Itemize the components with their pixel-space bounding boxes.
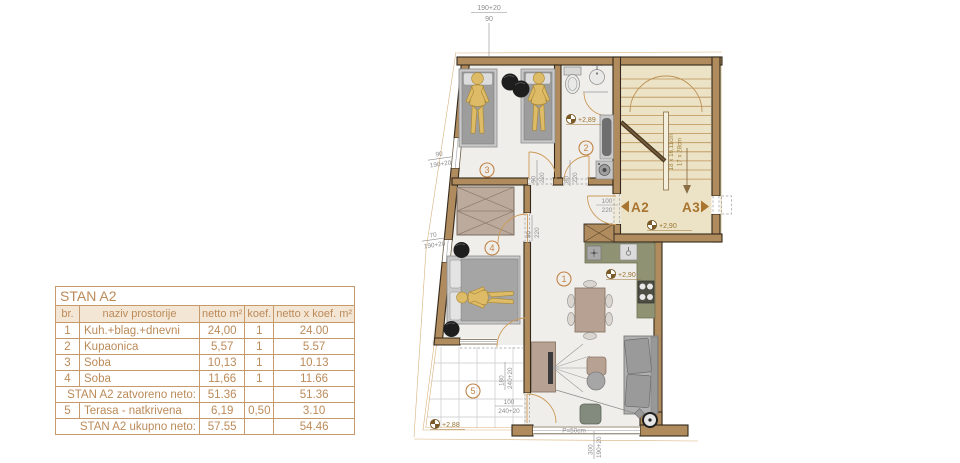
- svg-text:190+20: 190+20: [423, 240, 446, 250]
- stair-note-line1: 18 x 16,11cm: [668, 134, 675, 171]
- nightstand: [444, 321, 460, 337]
- svg-text:190+20: 190+20: [596, 436, 603, 458]
- stair-note-line2: 17 x 28cm: [677, 138, 684, 167]
- window-parapet: [533, 426, 640, 435]
- svg-text:100: 100: [504, 399, 515, 406]
- svg-text:220: 220: [602, 207, 613, 214]
- floor-plan-page: STAN A2 br. naziv prostorije netto m² ko…: [0, 0, 960, 463]
- office-chair: [587, 372, 605, 390]
- svg-text:220: 220: [539, 172, 546, 183]
- dim-bottom: 300 190+20: [588, 436, 603, 459]
- svg-text:240+20: 240+20: [498, 408, 520, 415]
- kitchen-sink: [620, 244, 637, 260]
- svg-text:5: 5: [470, 386, 475, 396]
- svg-text:1: 1: [561, 274, 566, 284]
- dim-window-70: 70 190+20: [421, 230, 447, 250]
- hall-closet: [584, 224, 614, 242]
- door-a3-opening: [722, 196, 732, 214]
- svg-text:+2,90: +2,90: [618, 272, 636, 279]
- svg-text:A3: A3: [682, 200, 700, 215]
- svg-text:300: 300: [588, 444, 595, 455]
- svg-text:180: 180: [499, 375, 506, 386]
- svg-text:90: 90: [531, 175, 538, 183]
- nightstand: [454, 242, 470, 258]
- svg-text:100: 100: [602, 198, 613, 205]
- sofa: [624, 336, 658, 414]
- wardrobe: [457, 187, 514, 235]
- svg-text:90: 90: [435, 151, 443, 159]
- kitchen-hob: [587, 246, 601, 260]
- svg-text:90: 90: [485, 16, 493, 23]
- washing-machine: [596, 161, 613, 179]
- svg-text:90: 90: [526, 230, 533, 238]
- dining-table: [575, 288, 605, 332]
- svg-text:+2,89: +2,89: [578, 117, 596, 124]
- svg-text:70: 70: [429, 232, 437, 240]
- svg-text:240+20: 240+20: [507, 367, 514, 389]
- dim-top: 190+20 90: [471, 5, 507, 56]
- stove: [638, 281, 654, 303]
- svg-text:3: 3: [484, 165, 489, 175]
- pouf: [513, 81, 530, 98]
- svg-text:190+20: 190+20: [477, 5, 501, 12]
- svg-text:+2,88: +2,88: [442, 422, 460, 429]
- svg-text:190+20: 190+20: [429, 159, 452, 169]
- svg-text:220: 220: [534, 227, 541, 238]
- boiler: [643, 413, 657, 427]
- parapet-note: P=50cm: [562, 428, 586, 435]
- floor-plan-drawing: 18 x 16,11cm 17 x 28cm: [0, 0, 960, 463]
- bathtub: [600, 115, 614, 159]
- svg-text:2: 2: [583, 143, 588, 153]
- armchair: [580, 404, 601, 424]
- svg-text:80: 80: [564, 175, 571, 183]
- toilet: [564, 67, 581, 94]
- svg-text:+2,90: +2,90: [659, 223, 677, 230]
- svg-text:4: 4: [489, 243, 494, 253]
- svg-text:220: 220: [572, 172, 579, 183]
- svg-text:A2: A2: [631, 200, 649, 215]
